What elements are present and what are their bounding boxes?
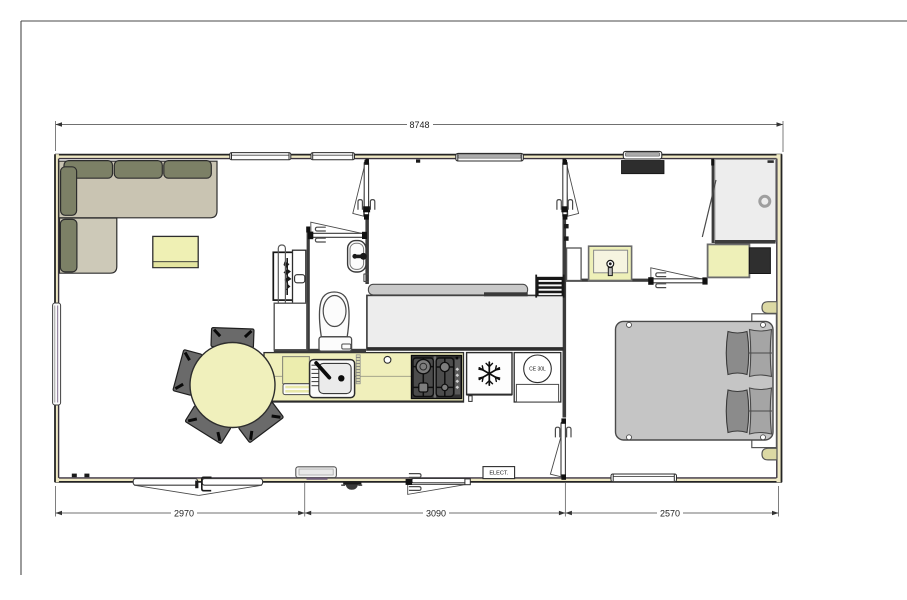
svg-text:2570: 2570 [660,508,680,518]
svg-text:ELECT.: ELECT. [489,471,508,477]
svg-text:8748: 8748 [409,120,429,130]
svg-text:2970: 2970 [174,508,194,518]
svg-text:3090: 3090 [426,508,446,518]
svg-text:CE 30L: CE 30L [529,367,546,373]
